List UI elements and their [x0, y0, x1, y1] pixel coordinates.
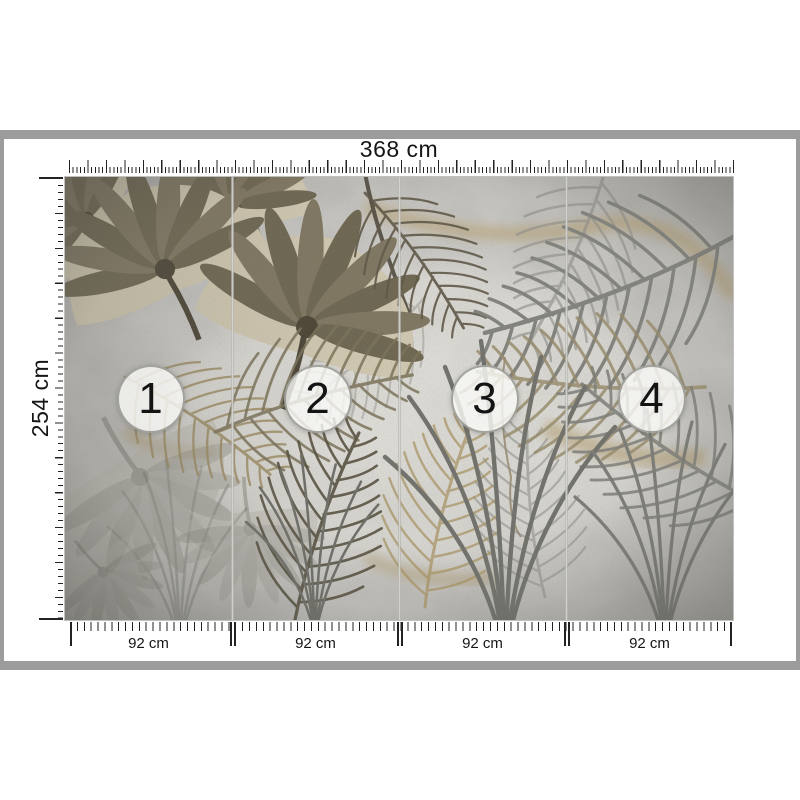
wallpaper-artwork: 1 2 3 4 [65, 177, 733, 620]
panel-divider [565, 177, 568, 620]
panel-width-label: 92 cm [399, 635, 566, 652]
panel-width-label: 92 cm [566, 635, 733, 652]
wallpaper-product-preview: 368 cm 254 cm [0, 0, 800, 800]
panel-number: 3 [472, 374, 496, 424]
top-ruler [69, 160, 734, 173]
panel-number: 1 [138, 374, 162, 424]
left-ruler-bottom-end-tick [39, 618, 63, 620]
panel-number: 4 [639, 374, 663, 424]
panel-number-badge: 2 [284, 365, 352, 433]
left-ruler-top-end-tick [39, 177, 63, 179]
panel-width-label: 92 cm [232, 635, 399, 652]
panel-width-label: 92 cm [65, 635, 232, 652]
panel-number-badge: 1 [117, 365, 185, 433]
panel-divider [231, 177, 234, 620]
total-width-label: 368 cm [65, 137, 733, 161]
panel-number: 2 [305, 374, 329, 424]
left-ruler [55, 178, 63, 619]
panel-divider [398, 177, 401, 620]
panel-number-badge: 3 [451, 365, 519, 433]
panel-number-badge: 4 [618, 365, 686, 433]
total-height-label: 254 cm [26, 337, 54, 459]
